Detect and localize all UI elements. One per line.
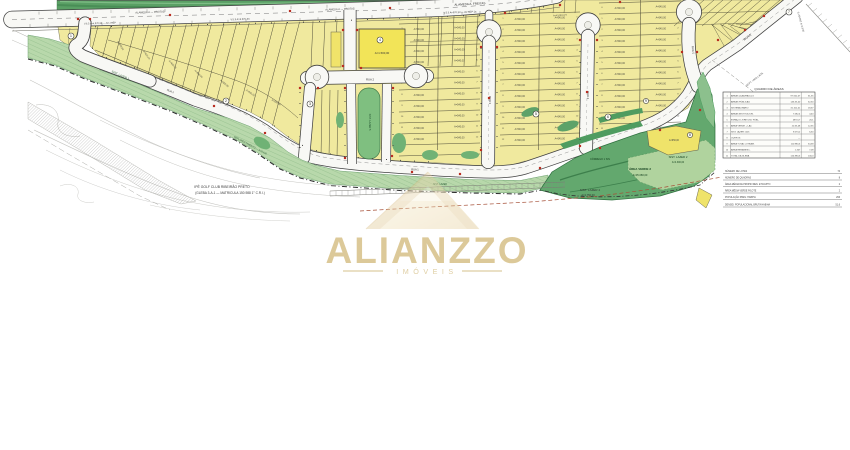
svg-text:A=540,00: A=540,00 (656, 28, 667, 31)
svg-text:QUADRO DE ÁREAS: QUADRO DE ÁREAS (754, 87, 783, 91)
svg-text:ESPAÇO LIVRE USO PÚBL.: ESPAÇO LIVRE USO PÚBL. (731, 118, 760, 121)
svg-text:2: 2 (225, 99, 227, 103)
svg-text:A=950,00: A=950,00 (669, 139, 680, 142)
svg-text:A=540,00: A=540,00 (555, 50, 566, 53)
svg-text:RUA 2: RUA 2 (366, 78, 375, 82)
svg-text:A=540,00: A=540,00 (414, 28, 425, 31)
svg-text:A=540,00: A=540,00 (515, 73, 526, 76)
svg-text:ÁREAS INSTITUCION.: ÁREAS INSTITUCION. (731, 112, 754, 115)
svg-text:A=540,00: A=540,00 (656, 83, 667, 86)
svg-text:(GLEBA 3-A-1 — MATRICULA 150.9: (GLEBA 3-A-1 — MATRICULA 150.988 1° C.R.… (195, 191, 265, 195)
svg-text:DENSID. POPULACIONAL BRUTA HAB: DENSID. POPULACIONAL BRUTA HAB/HA (725, 204, 771, 207)
svg-text:3: 3 (309, 102, 311, 106)
svg-text:A=540,00: A=540,00 (454, 137, 465, 140)
svg-text:A=540,00: A=540,00 (615, 84, 626, 87)
svg-text:A=540,00: A=540,00 (656, 94, 667, 97)
svg-text:A=540,00: A=540,00 (515, 18, 526, 21)
svg-text:A=540,00: A=540,00 (414, 127, 425, 130)
svg-text:51,6: 51,6 (836, 205, 841, 207)
svg-text:A=2.750,00: A=2.750,00 (581, 193, 595, 197)
svg-text:A=540,00: A=540,00 (656, 105, 667, 108)
svg-text:A=540,00: A=540,00 (656, 17, 667, 20)
svg-text:A=540,00: A=540,00 (414, 105, 425, 108)
svg-text:A=540,00: A=540,00 (454, 60, 465, 63)
svg-text:ÁREA MÉDIA VERDE P/LOTE: ÁREA MÉDIA VERDE P/LOTE (725, 190, 757, 193)
svg-text:A=540,00: A=540,00 (555, 28, 566, 31)
svg-text:7.582,4: 7.582,4 (793, 113, 801, 115)
svg-text:SISTEMA VIÁRIO: SISTEMA VIÁRIO (731, 106, 749, 109)
svg-text:A=540,00: A=540,00 (555, 138, 566, 141)
svg-text:A=540,00: A=540,00 (454, 104, 465, 107)
svg-text:A=1.500,00: A=1.500,00 (375, 51, 390, 55)
svg-text:ÁREA REMANESC.: ÁREA REMANESC. (731, 148, 751, 151)
svg-text:A=540,00: A=540,00 (615, 18, 626, 21)
svg-text:18,37: 18,37 (808, 107, 814, 109)
svg-text:CÓRREGO 1 S/N: CÓRREGO 1 S/N (590, 158, 610, 161)
svg-text:A=540,00: A=540,00 (414, 61, 425, 64)
svg-text:A=540,00: A=540,00 (555, 39, 566, 42)
svg-text:RUA 5: RUA 5 (691, 46, 696, 55)
svg-text:32,30: 32,30 (808, 101, 814, 103)
svg-text:20.35,48: 20.35,48 (792, 125, 801, 127)
svg-text:A=540,00: A=540,00 (615, 7, 626, 10)
svg-text:A=540,00: A=540,00 (414, 50, 425, 53)
svg-text:A=540,00: A=540,00 (656, 50, 667, 53)
svg-text:110.980,6: 110.980,6 (791, 143, 801, 145)
svg-text:A=540,00: A=540,00 (615, 95, 626, 98)
svg-text:A=540,00: A=540,00 (555, 83, 566, 86)
svg-text:97.562,07: 97.562,07 (791, 95, 802, 97)
svg-text:9.573,2: 9.573,2 (793, 131, 801, 133)
svg-text:100,0: 100,0 (808, 155, 814, 157)
svg-text:A=540,00: A=540,00 (414, 39, 425, 42)
svg-text:SIST. LAZER 1 A 5: SIST. LAZER 1 A 5 (731, 130, 750, 133)
svg-text:A=540,00: A=540,00 (515, 128, 526, 131)
svg-text:124.980,6: 124.980,6 (791, 155, 802, 157)
svg-text:4: 4 (379, 38, 381, 42)
svg-text:NÚMERO DE QUADRAS: NÚMERO DE QUADRAS (725, 177, 752, 180)
svg-text:A=540,00: A=540,00 (454, 126, 465, 129)
svg-text:SIST. LAZER 2: SIST. LAZER 2 (669, 155, 688, 159)
svg-text:48%3,7: 48%3,7 (793, 119, 801, 121)
svg-text:A=540,00: A=540,00 (555, 116, 566, 119)
svg-text:NÚMERO DE LOTES: NÚMERO DE LOTES (725, 170, 748, 173)
svg-text:A=540,00: A=540,00 (515, 40, 526, 43)
svg-text:ÁREA MÉDIA DE PROPR./DEN. ETC/: ÁREA MÉDIA DE PROPR./DEN. ETC/APTO (725, 183, 771, 186)
svg-text:9: 9 (645, 99, 647, 103)
svg-text:8: 8 (689, 133, 691, 137)
svg-text:TOTAL DA GLEBA: TOTAL DA GLEBA (731, 154, 750, 157)
svg-text:POPULAÇÃO PREV. HAB/HA: POPULAÇÃO PREV. HAB/HA (725, 196, 756, 199)
svg-text:5: 5 (535, 112, 537, 116)
svg-text:SIST. LAZER 4: SIST. LAZER 4 (580, 188, 601, 192)
svg-text:A=540,00: A=540,00 (515, 106, 526, 109)
svg-text:ÁREAS QUADRAS (LO: ÁREAS QUADRAS (LO (731, 94, 754, 97)
svg-text:ALIANZZO: ALIANZZO (325, 230, 528, 271)
svg-text:A=540,00: A=540,00 (555, 105, 566, 108)
svg-text:IMÓVEIS: IMÓVEIS (396, 267, 457, 276)
svg-text:A=540,00: A=540,00 (555, 61, 566, 64)
svg-text:A=540,00: A=540,00 (656, 61, 667, 64)
svg-text:1.347: 1.347 (795, 149, 801, 151)
svg-text:ÁREA TOTAL LOTEAM.: ÁREA TOTAL LOTEAM. (731, 142, 755, 145)
svg-text:12,35: 12,35 (808, 125, 814, 127)
svg-text:A=540,00: A=540,00 (454, 82, 465, 85)
svg-text:A=35.080,00: A=35.080,00 (633, 173, 648, 177)
svg-text:A=540,00: A=540,00 (615, 51, 626, 54)
svg-text:A=540,00: A=540,00 (454, 93, 465, 96)
svg-text:A=540,00: A=540,00 (515, 62, 526, 65)
svg-text:6: 6 (607, 115, 609, 119)
svg-text:SIST. LAZER 5: SIST. LAZER 5 (368, 114, 371, 131)
svg-text:A=540,00: A=540,00 (515, 139, 526, 142)
svg-text:A=540,00: A=540,00 (615, 40, 626, 43)
svg-text:A=540,00: A=540,00 (454, 27, 465, 30)
svg-text:A=540,00: A=540,00 (555, 72, 566, 75)
svg-text:A=540,00: A=540,00 (414, 116, 425, 119)
svg-text:A=540,00: A=540,00 (555, 94, 566, 97)
svg-text:A=540,00: A=540,00 (454, 38, 465, 41)
svg-text:ÁREA VERDE + LAZ.: ÁREA VERDE + LAZ. (731, 124, 752, 127)
svg-text:A=540,00: A=540,00 (656, 39, 667, 42)
svg-text:A=540,00: A=540,00 (615, 73, 626, 76)
svg-text:ÁREAS PÚBLICAS: ÁREAS PÚBLICAS (731, 100, 750, 103)
svg-text:ÁREA VERDE 2: ÁREA VERDE 2 (629, 166, 651, 171)
svg-text:A=4.300,00: A=4.300,00 (672, 161, 685, 164)
svg-text:A=540,00: A=540,00 (515, 29, 526, 32)
svg-text:A=540,00: A=540,00 (515, 95, 526, 98)
svg-text:A=540,00: A=540,00 (515, 51, 526, 54)
svg-text:OUTROS: OUTROS (731, 137, 741, 139)
svg-text:A=540,00: A=540,00 (615, 29, 626, 32)
svg-text:54,38: 54,38 (808, 143, 814, 145)
svg-text:61,35: 61,35 (808, 95, 814, 97)
svg-text:IPÊ GOLF CLUB RIBEIRÃO PRETO: IPÊ GOLF CLUB RIBEIRÃO PRETO (194, 184, 250, 189)
svg-text:146.35,40: 146.35,40 (791, 101, 802, 103)
svg-text:A=540,00: A=540,00 (656, 72, 667, 75)
svg-text:A=540,00: A=540,00 (656, 6, 667, 9)
svg-text:A=540,00: A=540,00 (615, 106, 626, 109)
svg-text:1: 1 (70, 34, 72, 38)
svg-text:A=540,00: A=540,00 (615, 62, 626, 65)
svg-text:A=540,00: A=540,00 (414, 94, 425, 97)
svg-text:A=540,00: A=540,00 (454, 49, 465, 52)
svg-text:A=540,00: A=540,00 (515, 84, 526, 87)
svg-text:A=540,00: A=540,00 (515, 117, 526, 120)
svg-text:A=540,00: A=540,00 (414, 138, 425, 141)
svg-text:A=540,00: A=540,00 (454, 115, 465, 118)
svg-text:31.102,41: 31.102,41 (791, 107, 802, 109)
svg-text:7: 7 (788, 10, 790, 14)
svg-text:A=540,00: A=540,00 (454, 71, 465, 74)
